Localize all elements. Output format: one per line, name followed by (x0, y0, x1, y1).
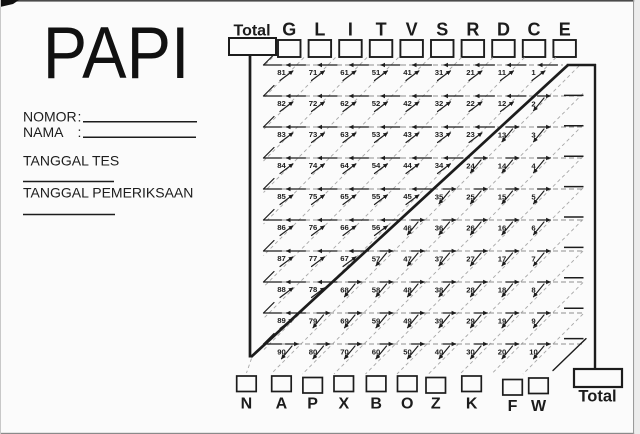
svg-text:B: B (370, 396, 382, 413)
svg-text:X: X (338, 396, 349, 413)
svg-text:D: D (497, 20, 510, 40)
svg-text:5: 5 (531, 193, 536, 202)
svg-text:Z: Z (431, 396, 441, 413)
svg-text:82: 82 (277, 99, 286, 108)
svg-text:71: 71 (309, 68, 318, 77)
svg-text::: : (78, 124, 82, 140)
svg-text:23: 23 (466, 130, 475, 139)
svg-text:73: 73 (309, 130, 318, 139)
svg-text:11: 11 (498, 68, 507, 77)
svg-text:F: F (508, 398, 518, 415)
svg-text:3: 3 (531, 131, 535, 140)
svg-text:56: 56 (372, 223, 381, 232)
svg-text:TANGGAL TES: TANGGAL TES (23, 152, 119, 168)
svg-text:22: 22 (466, 99, 475, 108)
svg-text:W: W (531, 398, 547, 415)
svg-text:51: 51 (372, 68, 381, 77)
svg-text:78: 78 (309, 285, 318, 294)
svg-text:Total: Total (233, 23, 270, 40)
svg-text:84: 84 (277, 161, 286, 170)
svg-text:1: 1 (531, 68, 536, 77)
svg-text:P: P (307, 396, 318, 413)
svg-text:C: C (528, 20, 541, 40)
svg-text:N: N (241, 396, 253, 413)
svg-text:G: G (282, 20, 296, 40)
svg-text:R: R (466, 20, 479, 40)
svg-text:NAMA: NAMA (23, 124, 64, 140)
svg-text:V: V (406, 20, 418, 40)
svg-text:44: 44 (403, 161, 412, 170)
svg-text:61: 61 (340, 68, 349, 77)
svg-text:I: I (348, 20, 353, 40)
svg-text:63: 63 (340, 130, 349, 139)
svg-text:E: E (559, 20, 571, 40)
svg-text:4: 4 (531, 162, 536, 171)
svg-text:34: 34 (435, 161, 444, 170)
svg-text:43: 43 (403, 130, 412, 139)
svg-text:81: 81 (277, 68, 286, 77)
svg-text:33: 33 (435, 130, 444, 139)
svg-text:76: 76 (309, 223, 318, 232)
svg-text:6: 6 (531, 224, 535, 233)
svg-text:TANGGAL PEMERIKSAAN: TANGGAL PEMERIKSAAN (23, 184, 193, 200)
svg-text:55: 55 (372, 192, 381, 201)
svg-text:52: 52 (372, 99, 381, 108)
svg-text:L: L (314, 20, 325, 40)
svg-text:32: 32 (435, 99, 444, 108)
svg-text:87: 87 (277, 254, 286, 263)
svg-text:86: 86 (277, 223, 286, 232)
svg-text:65: 65 (340, 192, 349, 201)
svg-text:K: K (466, 396, 478, 413)
svg-text:O: O (401, 396, 413, 413)
svg-text:75: 75 (309, 192, 318, 201)
svg-text:62: 62 (340, 99, 349, 108)
svg-text:66: 66 (340, 223, 349, 232)
svg-text:42: 42 (403, 99, 412, 108)
svg-text:21: 21 (466, 68, 475, 77)
svg-text:31: 31 (435, 68, 444, 77)
svg-text:74: 74 (309, 161, 318, 170)
svg-text:7: 7 (531, 255, 535, 264)
svg-text:NOMOR: NOMOR (23, 108, 77, 124)
svg-text:83: 83 (277, 130, 286, 139)
svg-text:54: 54 (372, 161, 381, 170)
svg-text:77: 77 (309, 254, 318, 263)
svg-text:PAPI: PAPI (43, 12, 190, 94)
svg-text::: : (78, 108, 82, 124)
svg-text:67: 67 (340, 254, 349, 263)
svg-text:2: 2 (531, 100, 535, 109)
svg-text:A: A (276, 396, 288, 413)
svg-text:S: S (436, 20, 448, 40)
svg-text:72: 72 (309, 99, 318, 108)
svg-text:T: T (376, 20, 387, 40)
svg-text:41: 41 (403, 68, 412, 77)
svg-text:9: 9 (531, 317, 535, 326)
svg-text:8: 8 (531, 286, 536, 295)
svg-text:12: 12 (498, 99, 507, 108)
svg-text:64: 64 (340, 161, 349, 170)
svg-text:85: 85 (277, 192, 286, 201)
svg-text:Total: Total (578, 388, 616, 406)
svg-text:53: 53 (372, 130, 381, 139)
svg-text:89: 89 (277, 316, 286, 325)
svg-text:88: 88 (277, 285, 286, 294)
svg-text:45: 45 (403, 192, 412, 201)
